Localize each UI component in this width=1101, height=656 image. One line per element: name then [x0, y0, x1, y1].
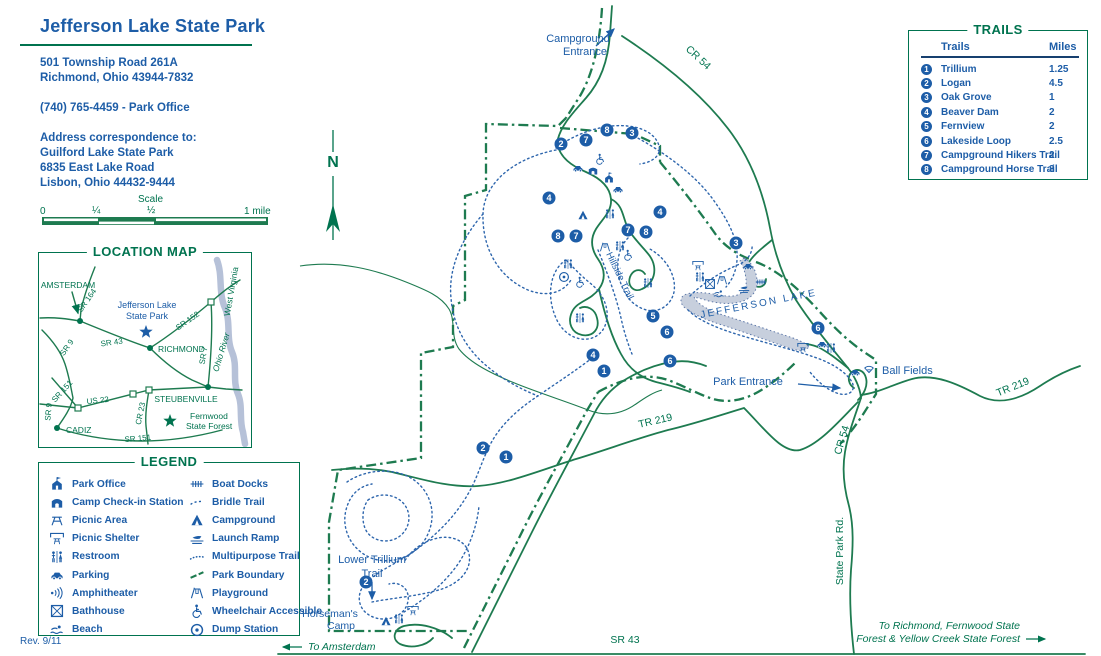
legend-item-picnic-shelter: Picnic Shelter	[49, 530, 187, 548]
scale-tick-mile: 1 mile	[244, 206, 271, 217]
legend-item-multipurpose-trail: Multipurpose Trail	[189, 548, 307, 566]
legend-item-label: Beach	[72, 624, 103, 635]
map-label-state-park-rd: State Park Rd.	[834, 517, 846, 585]
address-line: Lisbon, Ohio 44432-9444	[40, 176, 197, 191]
page-title: Jefferson Lake State Park	[40, 16, 265, 37]
legend-item-beach: Beach	[49, 621, 187, 639]
legend-item-label: Launch Ramp	[212, 533, 279, 544]
trail-number-badge: 6	[921, 136, 932, 147]
trail-marker-8: 8	[552, 230, 565, 243]
trail-marker-7: 7	[570, 230, 583, 243]
picnic-shelter-icon	[49, 531, 65, 547]
legend-item-park-boundary: Park Boundary	[189, 566, 307, 584]
trail-marker-7: 7	[580, 134, 593, 147]
trail-number-badge: 5	[921, 121, 932, 132]
trail-row-lakeside-loop: 6Lakeside Loop2.5	[921, 134, 1079, 148]
legend-box: LEGEND Park OfficeCamp Check-in StationP…	[38, 462, 300, 636]
legend-item-bridle-trail: Bridle Trail	[189, 493, 307, 511]
scale-tick-half: ½	[147, 205, 155, 216]
map-label-park-entrance: Park Entrance	[713, 376, 783, 388]
dump-station-icon	[189, 622, 205, 638]
map-label-cr-54: CR 54	[683, 43, 713, 72]
trail-name: Campground Horse Trail	[941, 164, 1049, 175]
trail-number-badge: 4	[921, 107, 932, 118]
amphitheater-icon	[49, 585, 65, 601]
road-campground-entrance	[557, 6, 612, 143]
picnic-shelter-icon	[693, 261, 703, 269]
svg-text:4: 4	[546, 193, 551, 203]
picnic-shelter-icon	[408, 606, 418, 614]
trail-name: Logan	[941, 78, 1049, 89]
trail-row-campground-horse-trail: 8Campground Horse Trail3	[921, 163, 1079, 177]
trail-number-badge: 3	[921, 92, 932, 103]
wheelchair-icon	[577, 277, 584, 288]
trail-marker-8: 8	[640, 226, 653, 239]
park-boundary-icon	[189, 567, 205, 583]
trail-name: Oak Grove	[941, 92, 1049, 103]
svg-text:6: 6	[815, 323, 820, 333]
trail-marker-5: 5	[647, 310, 660, 323]
trail-number-badge: 7	[921, 150, 932, 161]
trail-miles: 2.5	[1049, 136, 1079, 147]
map-label-sr-43: SR 43	[610, 634, 639, 646]
trail-number-badge: 2	[921, 78, 932, 89]
svg-text:8: 8	[555, 231, 560, 241]
svg-text:4: 4	[590, 350, 595, 360]
multipurpose-trail-icon	[189, 549, 205, 565]
revision-note: Rev. 9/11	[20, 636, 61, 647]
address-line: 6835 East Lake Road	[40, 161, 197, 176]
svg-text:7: 7	[583, 135, 588, 145]
trail-row-beaver-dam: 4Beaver Dam2	[921, 105, 1079, 119]
trail-marker-4: 4	[587, 349, 600, 362]
trail-miles: 1	[1049, 92, 1079, 103]
parking-icon	[817, 342, 826, 348]
legend-item-amphitheater: Amphitheater	[49, 584, 187, 602]
legend-item-label: Campground	[212, 515, 275, 526]
restroom-icon	[395, 614, 403, 624]
wheelchair-icon	[625, 250, 632, 261]
legend-item-label: Wheelchair Accessible	[212, 606, 322, 617]
playground-icon	[717, 276, 726, 284]
trail-number-badge: 8	[921, 164, 932, 175]
svg-text:3: 3	[629, 128, 634, 138]
launch-ramp-icon	[189, 531, 205, 547]
map-label-entrance: Entrance	[563, 46, 607, 58]
address-line: Address correspondence to:	[40, 131, 197, 146]
legend-item-label: Bridle Trail	[212, 497, 265, 508]
trail-row-fernview: 5Fernview2	[921, 120, 1079, 134]
restroom-icon	[49, 549, 65, 565]
miles-col-header: Miles	[1049, 41, 1079, 53]
location-map-box: LOCATION MAP	[38, 252, 252, 448]
trail-miles: 2	[1049, 121, 1079, 132]
legend-item-picnic-area: Picnic Area	[49, 511, 187, 529]
trail-row-logan: 2Logan4.5	[921, 76, 1079, 90]
trails-table-title: TRAILS	[967, 22, 1028, 37]
boat-docks-icon	[189, 476, 205, 492]
picnic-area-icon	[49, 512, 65, 528]
campground-icon	[578, 211, 587, 219]
legend-item-campground: Campground	[189, 511, 307, 529]
legend-item-label: Park Office	[72, 479, 126, 490]
trails-col-header: Trails	[941, 41, 1049, 53]
svg-text:2: 2	[558, 139, 563, 149]
playground-icon	[189, 585, 205, 601]
bridle-trail-icon	[189, 494, 205, 510]
trails-table-box: TRAILS Trails Miles 1Trillium1.252Logan4…	[908, 30, 1088, 180]
campground-icon	[381, 617, 390, 625]
legend-item-dump-station: Dump Station	[189, 621, 307, 639]
ballfield-icon	[865, 366, 873, 372]
legend-item-bathhouse: Bathhouse	[49, 602, 187, 620]
trail-row-trillium: 1Trillium1.25	[921, 62, 1079, 76]
legend-item-label: Dump Station	[212, 624, 278, 635]
trail-miles: 1.25	[1049, 64, 1079, 75]
legend-item-label: Picnic Area	[72, 515, 127, 526]
trail-miles: 2	[1049, 150, 1079, 161]
trail-row-oak-grove: 3Oak Grove1	[921, 91, 1079, 105]
map-label-n: N	[327, 154, 339, 171]
legend-item-playground: Playground	[189, 584, 307, 602]
legend-item-park-office: Park Office	[49, 475, 187, 493]
bathhouse-icon	[49, 603, 65, 619]
svg-text:3: 3	[733, 238, 738, 248]
trail-name: Lakeside Loop	[941, 136, 1049, 147]
wheelchair-icon	[597, 154, 604, 165]
park-entrance-arrow	[798, 384, 840, 388]
map-label-forest-yellow-creek-state-forest: Forest & Yellow Creek State Forest	[856, 633, 1021, 645]
legend-item-boat-docks: Boat Docks	[189, 475, 307, 493]
stream	[300, 264, 662, 414]
legend-item-parking: Parking	[49, 566, 187, 584]
trail-marker-4: 4	[543, 192, 556, 205]
parking-icon	[613, 187, 622, 193]
map-label-to-richmond-fernwood-state: To Richmond, Fernwood State	[879, 620, 1021, 632]
legend-item-wheelchair-accessible: Wheelchair Accessible	[189, 602, 307, 620]
trail-marker-1: 1	[500, 451, 513, 464]
trail-name: Trillium	[941, 64, 1049, 75]
title-divider	[20, 44, 252, 46]
park-address-block: 501 Township Road 261ARichmond, Ohio 439…	[40, 56, 197, 191]
trail-marker-6: 6	[812, 322, 825, 335]
trail-miles: 2	[1049, 107, 1079, 118]
svg-text:5: 5	[650, 311, 655, 321]
restroom-icon	[606, 209, 614, 219]
svg-text:6: 6	[667, 356, 672, 366]
trails-header-rule	[921, 56, 1079, 58]
svg-text:1: 1	[601, 366, 606, 376]
parking-icon	[49, 567, 65, 583]
checkin-icon	[589, 168, 597, 175]
scale-tick-quarter: ¼	[92, 205, 100, 216]
trails-table-header: Trails Miles	[921, 41, 1079, 53]
restroom-icon	[564, 259, 572, 269]
checkin-icon	[49, 494, 65, 510]
map-label-lower-trillium: Lower Trillium	[338, 554, 406, 566]
address-line	[40, 86, 197, 101]
legend-item-label: Camp Check-in Station	[72, 497, 184, 508]
svg-text:8: 8	[604, 125, 609, 135]
scale-tick-0: 0	[40, 206, 46, 217]
legend-item-label: Restroom	[72, 551, 120, 562]
trail-marker-3: 3	[626, 127, 639, 140]
trail-marker-2: 2	[477, 442, 490, 455]
svg-text:1: 1	[503, 452, 508, 462]
trail-miles: 4.5	[1049, 78, 1079, 89]
dump-station-icon	[560, 273, 569, 282]
map-label-camp: Camp	[327, 620, 355, 632]
trail-marker-1: 1	[598, 365, 611, 378]
map-label-tr-219: TR 219	[637, 411, 673, 430]
legend-item-label: Amphitheater	[72, 588, 138, 599]
legend-item-label: Picnic Shelter	[72, 533, 139, 544]
restroom-icon	[827, 343, 835, 353]
address-line: (740) 765-4459 - Park Office	[40, 101, 197, 116]
road-horsemans-camp-loop	[395, 625, 452, 647]
address-line	[40, 116, 197, 131]
north-arrow	[326, 130, 340, 240]
svg-text:7: 7	[573, 231, 578, 241]
trail-miles: 3	[1049, 164, 1079, 175]
trail-name: Beaver Dam	[941, 107, 1049, 118]
address-line: Richmond, Ohio 43944-7832	[40, 71, 197, 86]
park-office-icon	[49, 476, 65, 492]
trail-name: Fernview	[941, 121, 1049, 132]
restroom-icon	[616, 241, 624, 251]
map-label-ball-fields: Ball Fields	[882, 365, 933, 377]
location-map-title: LOCATION MAP	[87, 244, 203, 259]
legend-item-label: Parking	[72, 570, 109, 581]
trail-number-badge: 1	[921, 64, 932, 75]
svg-text:8: 8	[643, 227, 648, 237]
legend-item-camp-check-in-station: Camp Check-in Station	[49, 493, 187, 511]
svg-text:6: 6	[664, 327, 669, 337]
trail-marker-4: 4	[654, 206, 667, 219]
map-label-trail: Trail	[362, 568, 383, 580]
svg-text:4: 4	[657, 207, 662, 217]
legend-items: Park OfficeCamp Check-in StationPicnic A…	[49, 475, 307, 639]
address-line: Guilford Lake State Park	[40, 146, 197, 161]
road-tr219-west	[332, 402, 858, 486]
legend-item-label: Boat Docks	[212, 479, 268, 490]
trail-marker-6: 6	[661, 326, 674, 339]
trail-marker-2: 2	[555, 138, 568, 151]
map-label-tr-219: TR 219	[995, 375, 1032, 399]
bathhouse-icon	[706, 280, 715, 289]
legend-item-restroom: Restroom	[49, 548, 187, 566]
park-office-icon	[605, 172, 613, 182]
legend-item-label: Multipurpose Trail	[212, 551, 300, 562]
svg-text:7: 7	[625, 225, 630, 235]
trail-name: Campground Hikers Trail	[941, 150, 1049, 161]
map-label-to-amsterdam: To Amsterdam	[308, 641, 376, 653]
scale-bar	[42, 217, 268, 225]
legend-item-label: Playground	[212, 588, 268, 599]
map-label-campground: Campground	[546, 33, 610, 45]
trail-marker-6: 6	[664, 355, 677, 368]
trail-marker-7: 7	[622, 224, 635, 237]
trail-marker-8: 8	[601, 124, 614, 137]
trail-marker-3: 3	[730, 237, 743, 250]
map-label-cr-54: CR 54	[832, 424, 852, 456]
address-line: 501 Township Road 261A	[40, 56, 197, 71]
legend-item-launch-ramp: Launch Ramp	[189, 530, 307, 548]
legend-item-label: Park Boundary	[212, 570, 284, 581]
legend-item-label: Bathhouse	[72, 606, 125, 617]
restroom-icon	[696, 272, 704, 282]
playground-icon	[600, 243, 609, 251]
scale-title: Scale	[138, 194, 163, 205]
legend-title: LEGEND	[135, 454, 204, 469]
wheelchair-icon	[189, 603, 205, 619]
trail-row-campground-hikers-trail: 7Campground Hikers Trail2	[921, 148, 1079, 162]
restroom-icon	[576, 313, 584, 323]
svg-text:2: 2	[480, 443, 485, 453]
campground-icon	[189, 512, 205, 528]
